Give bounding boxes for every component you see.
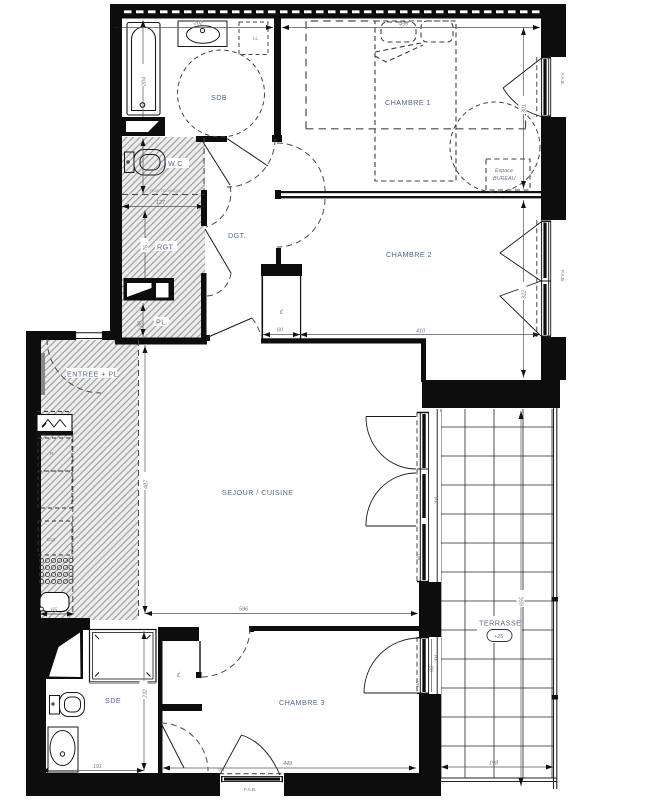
svg-text:65: 65 xyxy=(51,608,58,614)
svg-text:W.C: W.C xyxy=(168,159,183,168)
svg-text:449: 449 xyxy=(283,761,292,767)
svg-text:DGT.: DGT. xyxy=(228,231,246,240)
svg-text:455: 455 xyxy=(399,22,409,28)
svg-text:PL: PL xyxy=(279,308,284,314)
svg-text:PL.: PL. xyxy=(156,318,168,327)
svg-text:96: 96 xyxy=(430,666,436,672)
svg-text:LL: LL xyxy=(253,36,259,41)
svg-text:F.A.B.: F.A.B. xyxy=(560,73,565,85)
svg-text:RGT: RGT xyxy=(157,243,174,252)
svg-text:487: 487 xyxy=(144,479,150,489)
svg-text:191: 191 xyxy=(93,764,102,770)
svg-text:202: 202 xyxy=(193,21,203,27)
svg-text:F.A.B.: F.A.B. xyxy=(244,787,256,792)
svg-text:ENTREE + PL.: ENTREE + PL. xyxy=(67,370,121,379)
svg-text:P.F.: P.F. xyxy=(433,655,438,662)
svg-text:127: 127 xyxy=(156,200,166,206)
svg-text:BUREAU: BUREAU xyxy=(493,176,516,182)
svg-text:410: 410 xyxy=(416,329,425,335)
svg-text:VR: VR xyxy=(416,554,421,561)
svg-text:301: 301 xyxy=(522,104,528,113)
svg-text:F.A.B.: F.A.B. xyxy=(560,270,565,282)
svg-text:CHAMBRE 3: CHAMBRE 3 xyxy=(279,698,325,707)
svg-text:+25: +25 xyxy=(494,634,504,640)
svg-text:SDE: SDE xyxy=(105,696,121,705)
svg-text:76: 76 xyxy=(144,245,150,251)
svg-text:596: 596 xyxy=(239,607,248,613)
svg-text:P.F.: P.F. xyxy=(433,497,438,504)
svg-text:60: 60 xyxy=(277,328,283,334)
svg-text:198: 198 xyxy=(489,761,498,767)
svg-text:TERRASSE: TERRASSE xyxy=(479,619,521,628)
svg-text:80: 80 xyxy=(138,321,144,327)
svg-text:SEJOUR / CUISINE: SEJOUR / CUISINE xyxy=(222,488,294,497)
svg-text:CHAMBRE 2: CHAMBRE 2 xyxy=(386,250,432,259)
svg-text:SDB: SDB xyxy=(211,93,227,102)
svg-text:CUI: CUI xyxy=(47,537,55,542)
svg-text:232: 232 xyxy=(143,689,149,699)
svg-text:PLAN TECHNIQUE: PLAN TECHNIQUE xyxy=(150,189,182,193)
svg-text:Espace: Espace xyxy=(495,168,513,174)
svg-text:PL: PL xyxy=(176,671,181,677)
svg-text:322: 322 xyxy=(522,290,528,299)
svg-text:655: 655 xyxy=(520,596,526,606)
svg-text:VR: VR xyxy=(415,681,420,688)
svg-text:204: 204 xyxy=(142,77,148,87)
svg-text:CHAMBRE 1: CHAMBRE 1 xyxy=(385,98,431,107)
